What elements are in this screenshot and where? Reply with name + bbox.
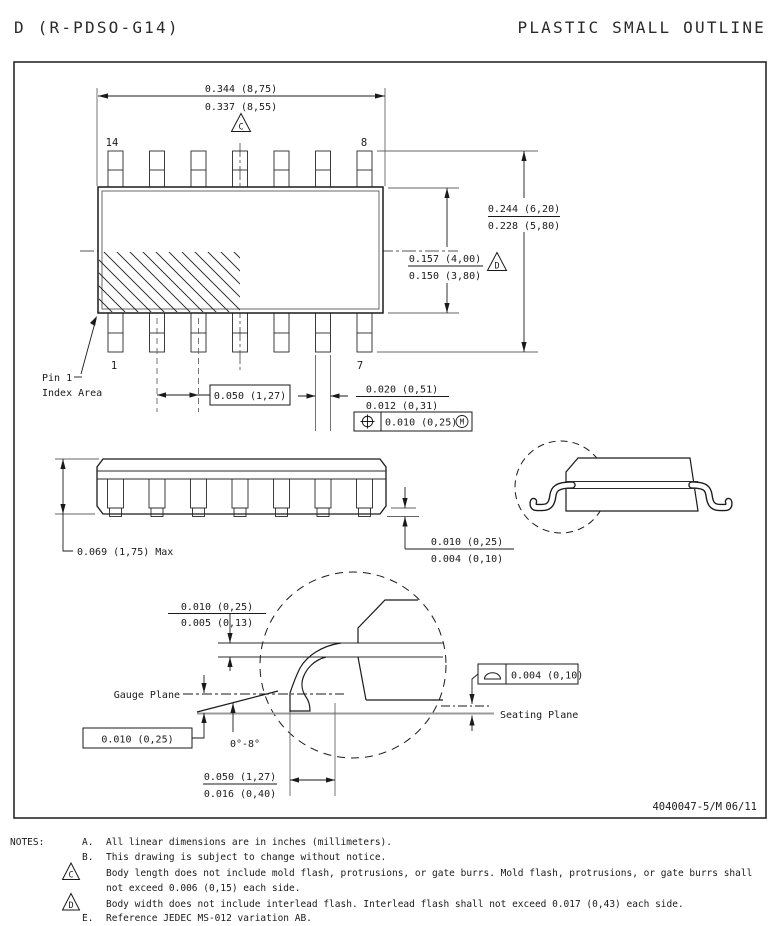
dim-foot-den: 0.016 (0,40) bbox=[204, 789, 276, 800]
detail-body-edge bbox=[358, 600, 443, 700]
pin1-index-label-2: Index Area bbox=[42, 388, 102, 399]
dim-height-value: 0.069 (1,75) Max bbox=[77, 547, 173, 558]
dim-body-width-num: 0.157 (4,00) bbox=[409, 254, 481, 265]
dim-standoff: 0.010 (0,25) 0.004 (0,10) bbox=[387, 487, 514, 565]
dim-lead-angle: 0°-8° bbox=[230, 703, 260, 750]
header: D (R-PDSO-G14) PLASTIC SMALL OUTLINE bbox=[14, 18, 766, 37]
dim-body-width-den: 0.150 (3,80) bbox=[409, 271, 481, 282]
drawing-designator: D (R-PDSO-G14) bbox=[14, 18, 180, 37]
package-outline-drawing: D (R-PDSO-G14) PLASTIC SMALL OUTLINE bbox=[0, 0, 780, 926]
gauge-plane-label: Gauge Plane bbox=[114, 690, 180, 701]
seating-plane-label: Seating Plane bbox=[500, 710, 578, 721]
flatness-symbol-icon bbox=[485, 673, 501, 679]
note-b-text: This drawing is subject to change withou… bbox=[106, 852, 386, 863]
dim-standoff-num: 0.010 (0,25) bbox=[431, 537, 503, 548]
flatness-value: 0.004 (0,10) bbox=[511, 671, 583, 682]
note-e-text: Reference JEDEC MS-012 variation AB. bbox=[106, 913, 312, 924]
flatness-callout: 0.004 (0,10) Seating Plane bbox=[469, 664, 583, 731]
note-flag-c-list-icon: C bbox=[63, 863, 80, 881]
position-tolerance-value: 0.010 (0,25) bbox=[385, 418, 457, 429]
side-view: 0.069 (1,75) Max 0.010 (0,25) 0.004 (0,1… bbox=[55, 459, 514, 565]
end-view bbox=[515, 441, 729, 533]
note-c-text-line2: not exceed 0.006 (0,15) each side. bbox=[106, 883, 300, 894]
max-material-condition-icon: M bbox=[456, 416, 468, 428]
top-view: 14 8 1 7 0.344 (8,75) 0.337 (8,55) C bbox=[38, 84, 560, 431]
note-d-text: Body width does not include interlead fl… bbox=[106, 899, 684, 910]
dim-body-length-num: 0.344 (8,75) bbox=[205, 84, 277, 95]
pin-label-14: 14 bbox=[106, 137, 119, 149]
dim-thickness-den: 0.005 (0,13) bbox=[181, 618, 253, 629]
pin1-index-label-1: Pin 1 bbox=[42, 373, 72, 384]
package-body bbox=[38, 187, 383, 313]
note-e-label: E. bbox=[82, 913, 93, 924]
dim-body-length-den: 0.337 (8,55) bbox=[205, 102, 277, 113]
dim-pitch: 0.050 (1,27) bbox=[157, 318, 290, 412]
end-body bbox=[566, 458, 698, 511]
pin1-index-callout: Pin 1 Index Area bbox=[42, 316, 102, 399]
dim-lead-thickness: 0.010 (0,25) 0.005 (0,13) bbox=[168, 602, 266, 671]
doc-number: 4040047-5/M bbox=[652, 801, 722, 813]
dim-body-length: 0.344 (8,75) 0.337 (8,55) C bbox=[97, 84, 385, 186]
svg-text:D: D bbox=[494, 262, 499, 272]
doc-date: 06/11 bbox=[725, 801, 757, 813]
svg-text:D: D bbox=[68, 901, 73, 911]
page-title: PLASTIC SMALL OUTLINE bbox=[518, 18, 767, 37]
pin-label-7: 7 bbox=[357, 360, 363, 372]
dim-standoff-den: 0.004 (0,10) bbox=[431, 554, 503, 565]
dim-foot-length: 0.050 (1,27) 0.016 (0,40) bbox=[203, 703, 335, 800]
note-flag-d-list-icon: D bbox=[63, 894, 80, 912]
notes-label: NOTES: bbox=[10, 837, 44, 848]
notes: NOTES: A. All linear dimensions are in i… bbox=[10, 837, 752, 924]
gauge-plane-callout: Gauge Plane 0.010 (0,25) bbox=[83, 675, 207, 748]
note-c-text-line1: Body length does not include mold flash,… bbox=[106, 868, 752, 879]
note-flag-c-icon: C bbox=[232, 114, 251, 133]
dim-overall-den: 0.228 (5,80) bbox=[488, 221, 560, 232]
dim-pitch-value: 0.050 (1,27) bbox=[214, 391, 286, 402]
angle-value: 0°-8° bbox=[230, 739, 260, 750]
dim-lead-width-den: 0.012 (0,31) bbox=[366, 401, 438, 412]
position-tolerance-frame: 0.010 (0,25) M bbox=[354, 412, 472, 431]
pin1-leader-arrow bbox=[90, 316, 97, 326]
detail-view: 0.010 (0,25) 0.005 (0,13) Gauge Plane 0.… bbox=[83, 572, 583, 800]
note-b-label: B. bbox=[82, 852, 93, 863]
note-a-label: A. bbox=[82, 837, 93, 848]
note-flag-d-icon: D bbox=[488, 253, 507, 272]
detail-circle bbox=[260, 572, 446, 758]
dim-overall-width: 0.244 (6,20) 0.228 (5,80) bbox=[377, 151, 560, 352]
drawing-border bbox=[14, 62, 766, 818]
dim-thickness-num: 0.010 (0,25) bbox=[181, 602, 253, 613]
svg-text:M: M bbox=[460, 418, 465, 427]
dim-foot-num: 0.050 (1,27) bbox=[204, 772, 276, 783]
footer: 4040047-5/M 06/11 bbox=[652, 801, 757, 813]
dim-lead-width: 0.020 (0,51) 0.012 (0,31) 0.010 (0,25) M bbox=[298, 355, 472, 431]
svg-text:C: C bbox=[68, 871, 73, 881]
pin-label-8: 8 bbox=[361, 137, 367, 149]
dim-lead-width-num: 0.020 (0,51) bbox=[366, 385, 438, 396]
note-a-text: All linear dimensions are in inches (mil… bbox=[106, 837, 392, 848]
position-tolerance-icon bbox=[361, 415, 375, 429]
detail-lead bbox=[290, 643, 341, 712]
svg-text:C: C bbox=[238, 123, 243, 133]
side-body bbox=[97, 459, 386, 514]
dim-overall-num: 0.244 (6,20) bbox=[488, 204, 560, 215]
pin-label-1: 1 bbox=[111, 360, 117, 372]
gauge-offset-value: 0.010 (0,25) bbox=[101, 735, 173, 746]
